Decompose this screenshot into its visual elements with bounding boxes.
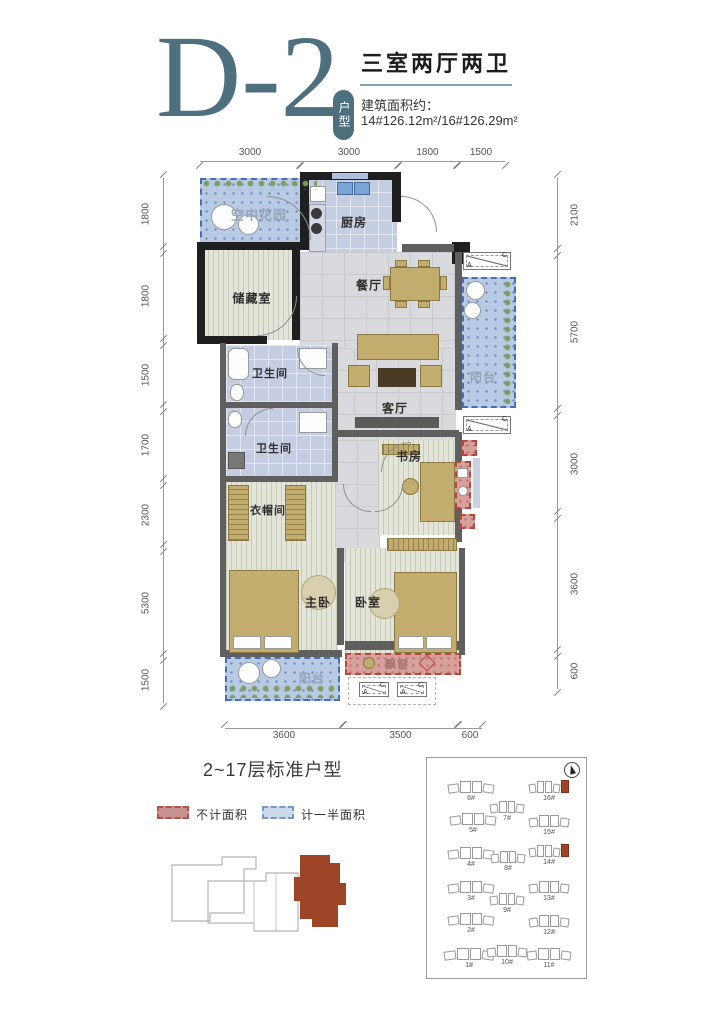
label-kitchen: 厨房 bbox=[341, 214, 367, 231]
dim-value: 2100 bbox=[570, 204, 581, 226]
site-building: 11# bbox=[527, 947, 571, 960]
dim-bottom-1: 3500 bbox=[343, 728, 458, 746]
wall bbox=[337, 548, 344, 645]
dim-left-4: 2300 bbox=[149, 482, 164, 548]
wall bbox=[220, 343, 226, 482]
floorplan-page: D-2 户型 三室两厅两卫 建筑面积约： 14#126.12m²/16#126.… bbox=[0, 0, 720, 1018]
dim-value: 600 bbox=[570, 663, 581, 680]
site-building: 8# bbox=[491, 850, 525, 863]
dim-left-3: 1700 bbox=[149, 408, 164, 482]
dim-value: 3600 bbox=[570, 573, 581, 595]
dining-chair bbox=[418, 301, 430, 308]
desk bbox=[420, 462, 455, 522]
dim-value: 1500 bbox=[141, 364, 152, 386]
dim-right-0: 2100 bbox=[557, 178, 572, 252]
entry-door-arc bbox=[401, 196, 437, 232]
site-building: 9# bbox=[490, 892, 524, 905]
toilet-icon bbox=[230, 384, 244, 401]
site-building: 15# bbox=[529, 814, 569, 827]
label-bay-window: 飘窗 bbox=[385, 656, 409, 672]
dim-right-1: 5700 bbox=[557, 252, 572, 412]
vanity-icon bbox=[299, 412, 327, 433]
burner-icon bbox=[311, 223, 322, 234]
label-study: 书房 bbox=[396, 448, 422, 465]
dim-value: 5300 bbox=[141, 591, 152, 613]
balcony-chair bbox=[464, 302, 481, 319]
marker-a: A bbox=[467, 262, 472, 269]
building-outline-diagram bbox=[158, 843, 398, 943]
armchair bbox=[420, 365, 442, 387]
section-marker: AC bbox=[463, 416, 511, 434]
dining-chair bbox=[418, 260, 430, 267]
label-balcony-bottom: 阳台 bbox=[299, 670, 325, 687]
dim-value: 1500 bbox=[141, 669, 152, 691]
dim-top-1: 3000 bbox=[300, 147, 398, 162]
dim-left-2: 1500 bbox=[149, 342, 164, 408]
dim-value: 3600 bbox=[273, 730, 295, 741]
site-building-label: 2# bbox=[448, 927, 494, 934]
dim-bottom-2: 600 bbox=[458, 728, 482, 746]
wall bbox=[292, 250, 300, 340]
tower-divider bbox=[254, 873, 276, 931]
desk-chair bbox=[402, 478, 419, 495]
unit-code: D-2 bbox=[156, 18, 340, 136]
equipment-icon bbox=[458, 486, 468, 496]
label-balcony-right: 阳台 bbox=[470, 369, 496, 386]
label-sky-garden: 空中花园 bbox=[231, 205, 287, 224]
dim-value: 1800 bbox=[141, 203, 152, 225]
dim-left-0: 1800 bbox=[149, 178, 164, 250]
equipment-icon bbox=[457, 468, 468, 478]
balcony-chair bbox=[262, 659, 281, 678]
dim-top-3: 1500 bbox=[457, 147, 505, 162]
area-label: 建筑面积约： bbox=[361, 95, 439, 114]
section-marker: AC bbox=[397, 682, 427, 697]
label-bath-lower: 卫生间 bbox=[256, 440, 292, 456]
marker-a: A bbox=[401, 689, 406, 696]
site-building: 10# bbox=[487, 944, 527, 957]
marker-c: C bbox=[502, 252, 507, 259]
plants bbox=[201, 179, 317, 190]
site-building: 6# bbox=[448, 780, 494, 793]
excluded-area-patch bbox=[460, 514, 475, 529]
site-building-label: 13# bbox=[529, 895, 569, 902]
header-divider bbox=[360, 84, 512, 86]
wall bbox=[332, 430, 459, 437]
section-marker: AC bbox=[359, 682, 389, 697]
site-building: 13# bbox=[529, 880, 569, 893]
site-building-label: 9# bbox=[490, 907, 524, 914]
dim-top-2: 1800 bbox=[398, 147, 457, 162]
site-building-label: 10# bbox=[487, 959, 527, 966]
site-plan-map: 6#16#7#5#15#4#8#14#3#9#13#2#12#1#10#11# bbox=[426, 757, 587, 979]
highlighted-unit bbox=[561, 844, 569, 857]
kitchen-window bbox=[332, 173, 368, 179]
armchair bbox=[348, 365, 370, 387]
unit-type-badge: 户型 bbox=[333, 90, 354, 140]
pillow bbox=[426, 636, 452, 649]
sofa bbox=[357, 334, 439, 360]
dining-chair bbox=[395, 260, 407, 267]
site-building: 2# bbox=[448, 912, 494, 925]
dim-value: 3000 bbox=[570, 452, 581, 474]
layout-title: 三室两厅两卫 bbox=[361, 46, 511, 78]
label-storage: 储藏室 bbox=[232, 290, 271, 307]
site-building-label: 6# bbox=[448, 795, 494, 802]
dim-left-6: 1500 bbox=[149, 657, 164, 703]
site-building-label: 14# bbox=[529, 859, 569, 866]
site-building-label: 5# bbox=[450, 827, 496, 834]
site-building-label: 3# bbox=[448, 895, 494, 902]
marker-a: A bbox=[467, 426, 472, 433]
wall bbox=[226, 402, 332, 408]
toilet-icon bbox=[228, 411, 242, 428]
site-building: 4# bbox=[448, 846, 494, 859]
marker-c: C bbox=[418, 682, 423, 689]
dim-top-0: 3000 bbox=[200, 147, 300, 162]
floor-plan: AC AC AC AC 空中花园 厨房 储藏室 餐厅 卫生间 卫生间 客厅 阳台… bbox=[197, 170, 519, 710]
wall bbox=[220, 476, 338, 482]
dim-value: 3500 bbox=[389, 730, 411, 741]
floor-note: 2~17层标准户型 bbox=[203, 756, 343, 782]
dim-value: 3000 bbox=[239, 147, 261, 158]
label-master-bedroom: 主卧 bbox=[305, 594, 331, 611]
highlighted-unit bbox=[561, 780, 569, 793]
dim-bottom-0: 3600 bbox=[225, 728, 343, 746]
highlighted-unit-shape bbox=[294, 855, 346, 927]
dim-value: 2300 bbox=[141, 504, 152, 526]
marker-c: C bbox=[380, 682, 385, 689]
pillow bbox=[233, 636, 261, 649]
dining-chair bbox=[383, 276, 390, 290]
site-building-label: 8# bbox=[491, 865, 525, 872]
label-bath-upper: 卫生间 bbox=[252, 365, 288, 381]
site-building-label: 12# bbox=[529, 929, 569, 936]
tower-outline bbox=[208, 873, 298, 931]
tv-cabinet bbox=[355, 417, 439, 428]
wall bbox=[197, 242, 205, 344]
legend-half-label: 计一半面积 bbox=[301, 806, 366, 823]
label-cloakroom: 衣帽间 bbox=[250, 502, 286, 518]
bay-window-decor bbox=[363, 657, 375, 669]
dim-value: 1800 bbox=[416, 147, 438, 158]
dim-left-5: 5300 bbox=[149, 548, 164, 657]
tower-outline bbox=[172, 857, 256, 921]
stove-icon bbox=[337, 182, 353, 195]
excluded-area-patch bbox=[462, 440, 477, 456]
wall bbox=[459, 548, 465, 655]
dim-right-4: 600 bbox=[557, 653, 572, 689]
wall bbox=[332, 343, 338, 482]
site-building: 5# bbox=[450, 812, 496, 825]
legend-excluded-swatch bbox=[157, 806, 189, 819]
wall bbox=[220, 480, 226, 657]
stove-icon bbox=[354, 182, 370, 195]
site-building-label: 4# bbox=[448, 861, 494, 868]
balcony-chair bbox=[466, 281, 485, 300]
dim-value: 1800 bbox=[141, 285, 152, 307]
marker-a: A bbox=[363, 689, 368, 696]
dim-value: 1700 bbox=[141, 434, 152, 456]
legend-excluded-label: 不计面积 bbox=[196, 806, 248, 823]
plants bbox=[502, 280, 515, 404]
dim-value: 5700 bbox=[570, 321, 581, 343]
washer-icon bbox=[228, 452, 245, 469]
wardrobe bbox=[228, 485, 249, 541]
label-living: 客厅 bbox=[382, 400, 408, 417]
wall bbox=[455, 252, 462, 410]
compass-icon bbox=[564, 762, 580, 778]
site-building-label: 16# bbox=[529, 795, 569, 802]
wardrobe bbox=[387, 538, 457, 551]
dim-right-2: 3000 bbox=[557, 412, 572, 515]
site-building: 14# bbox=[529, 844, 569, 857]
dim-value: 3000 bbox=[338, 147, 360, 158]
area-value: 14#126.12m²/16#126.29m² bbox=[361, 113, 518, 128]
pillow bbox=[264, 636, 292, 649]
label-bedroom: 卧室 bbox=[355, 594, 381, 611]
wall bbox=[402, 244, 454, 252]
balcony-chair bbox=[238, 662, 260, 684]
dining-chair bbox=[395, 301, 407, 308]
dining-chair bbox=[440, 276, 447, 290]
dim-value: 600 bbox=[462, 730, 479, 741]
dim-right-3: 3600 bbox=[557, 515, 572, 653]
wall bbox=[392, 172, 401, 222]
burner-icon bbox=[311, 208, 322, 219]
site-building-label: 11# bbox=[527, 962, 571, 969]
section-marker: AC bbox=[463, 252, 511, 270]
dim-value: 1500 bbox=[470, 147, 492, 158]
dim-left-1: 1800 bbox=[149, 250, 164, 342]
bathtub-icon bbox=[228, 348, 249, 380]
site-building: 12# bbox=[529, 914, 569, 927]
dining-table bbox=[390, 267, 440, 301]
pillow bbox=[398, 636, 424, 649]
wall bbox=[197, 336, 267, 344]
marker-c: C bbox=[502, 416, 507, 423]
site-building: 16# bbox=[529, 780, 569, 793]
site-building: 3# bbox=[448, 880, 494, 893]
label-dining: 餐厅 bbox=[356, 277, 382, 294]
window-strip bbox=[473, 458, 480, 508]
legend-half-swatch bbox=[262, 806, 294, 819]
wall bbox=[197, 242, 306, 250]
coffee-table bbox=[378, 368, 416, 387]
site-building-label: 15# bbox=[529, 829, 569, 836]
wardrobe bbox=[285, 485, 306, 541]
